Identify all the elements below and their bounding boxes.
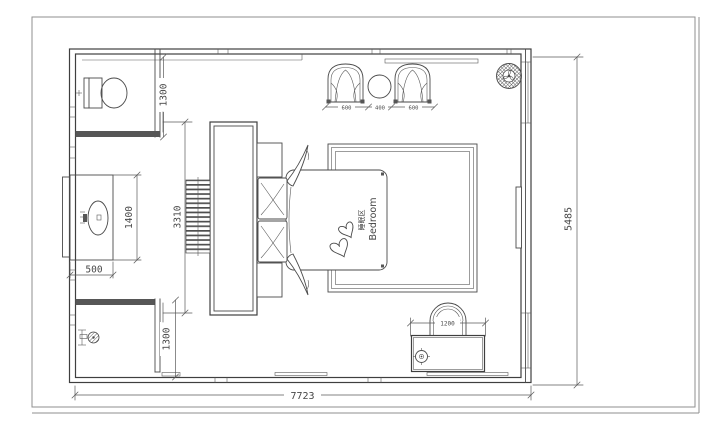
dim-wc-depth: 1300 (159, 83, 170, 106)
dim-vanity-length: 1400 (124, 206, 135, 229)
dim-vanity-width: 500 (85, 265, 102, 276)
faucet-icon (83, 214, 87, 222)
shower-head-icon (78, 330, 99, 345)
dimension-overall-height: 5485 (533, 54, 583, 388)
dim-lounge-table: 400 (375, 106, 385, 112)
nightstand-top (257, 143, 282, 177)
dim-wardrobe-length: 3310 (173, 205, 184, 228)
vanity-counter (70, 175, 113, 260)
dim-lounge-chair-left: 600 (342, 106, 352, 112)
wc-partition (76, 49, 161, 137)
ceiling-fan-icon (497, 64, 522, 89)
dim-lounge-chair-right: 600 (409, 106, 419, 112)
floor-plan-drawing: 睡眠区 Bedroom 600 400 600 (0, 0, 722, 438)
radiator-grille (186, 177, 210, 256)
armchair-right (394, 64, 432, 104)
armchair-left (327, 64, 365, 104)
dressing-desk (412, 336, 485, 372)
pillow (258, 221, 287, 262)
side-table (368, 75, 391, 98)
nightstand-bottom (257, 263, 282, 297)
washbasin (88, 201, 108, 235)
dim-desk-width: 1200 (440, 321, 455, 328)
dimension-vanity-length: 1400 (113, 172, 141, 263)
bed: 睡眠区 Bedroom (257, 143, 387, 297)
dim-shower-depth: 1300 (162, 327, 173, 350)
wall-pier (516, 187, 522, 248)
dimension-lounge: 600 400 600 (323, 103, 438, 112)
dimension-desk: 1200 (408, 317, 489, 336)
dim-overall-height: 5485 (564, 207, 575, 231)
dimension-overall-width: 7723 (72, 386, 534, 402)
wardrobe (210, 122, 257, 315)
curtain-box (385, 59, 478, 63)
floor-plan-sheet: 睡眠区 Bedroom 600 400 600 (0, 0, 722, 438)
room-label-en: Bedroom (368, 198, 379, 241)
dim-overall-width: 7723 (290, 391, 314, 402)
pillow (258, 178, 287, 219)
room-label-cn: 睡眠区 (358, 210, 366, 231)
wall-pilaster (63, 177, 70, 257)
toilet (76, 78, 127, 108)
